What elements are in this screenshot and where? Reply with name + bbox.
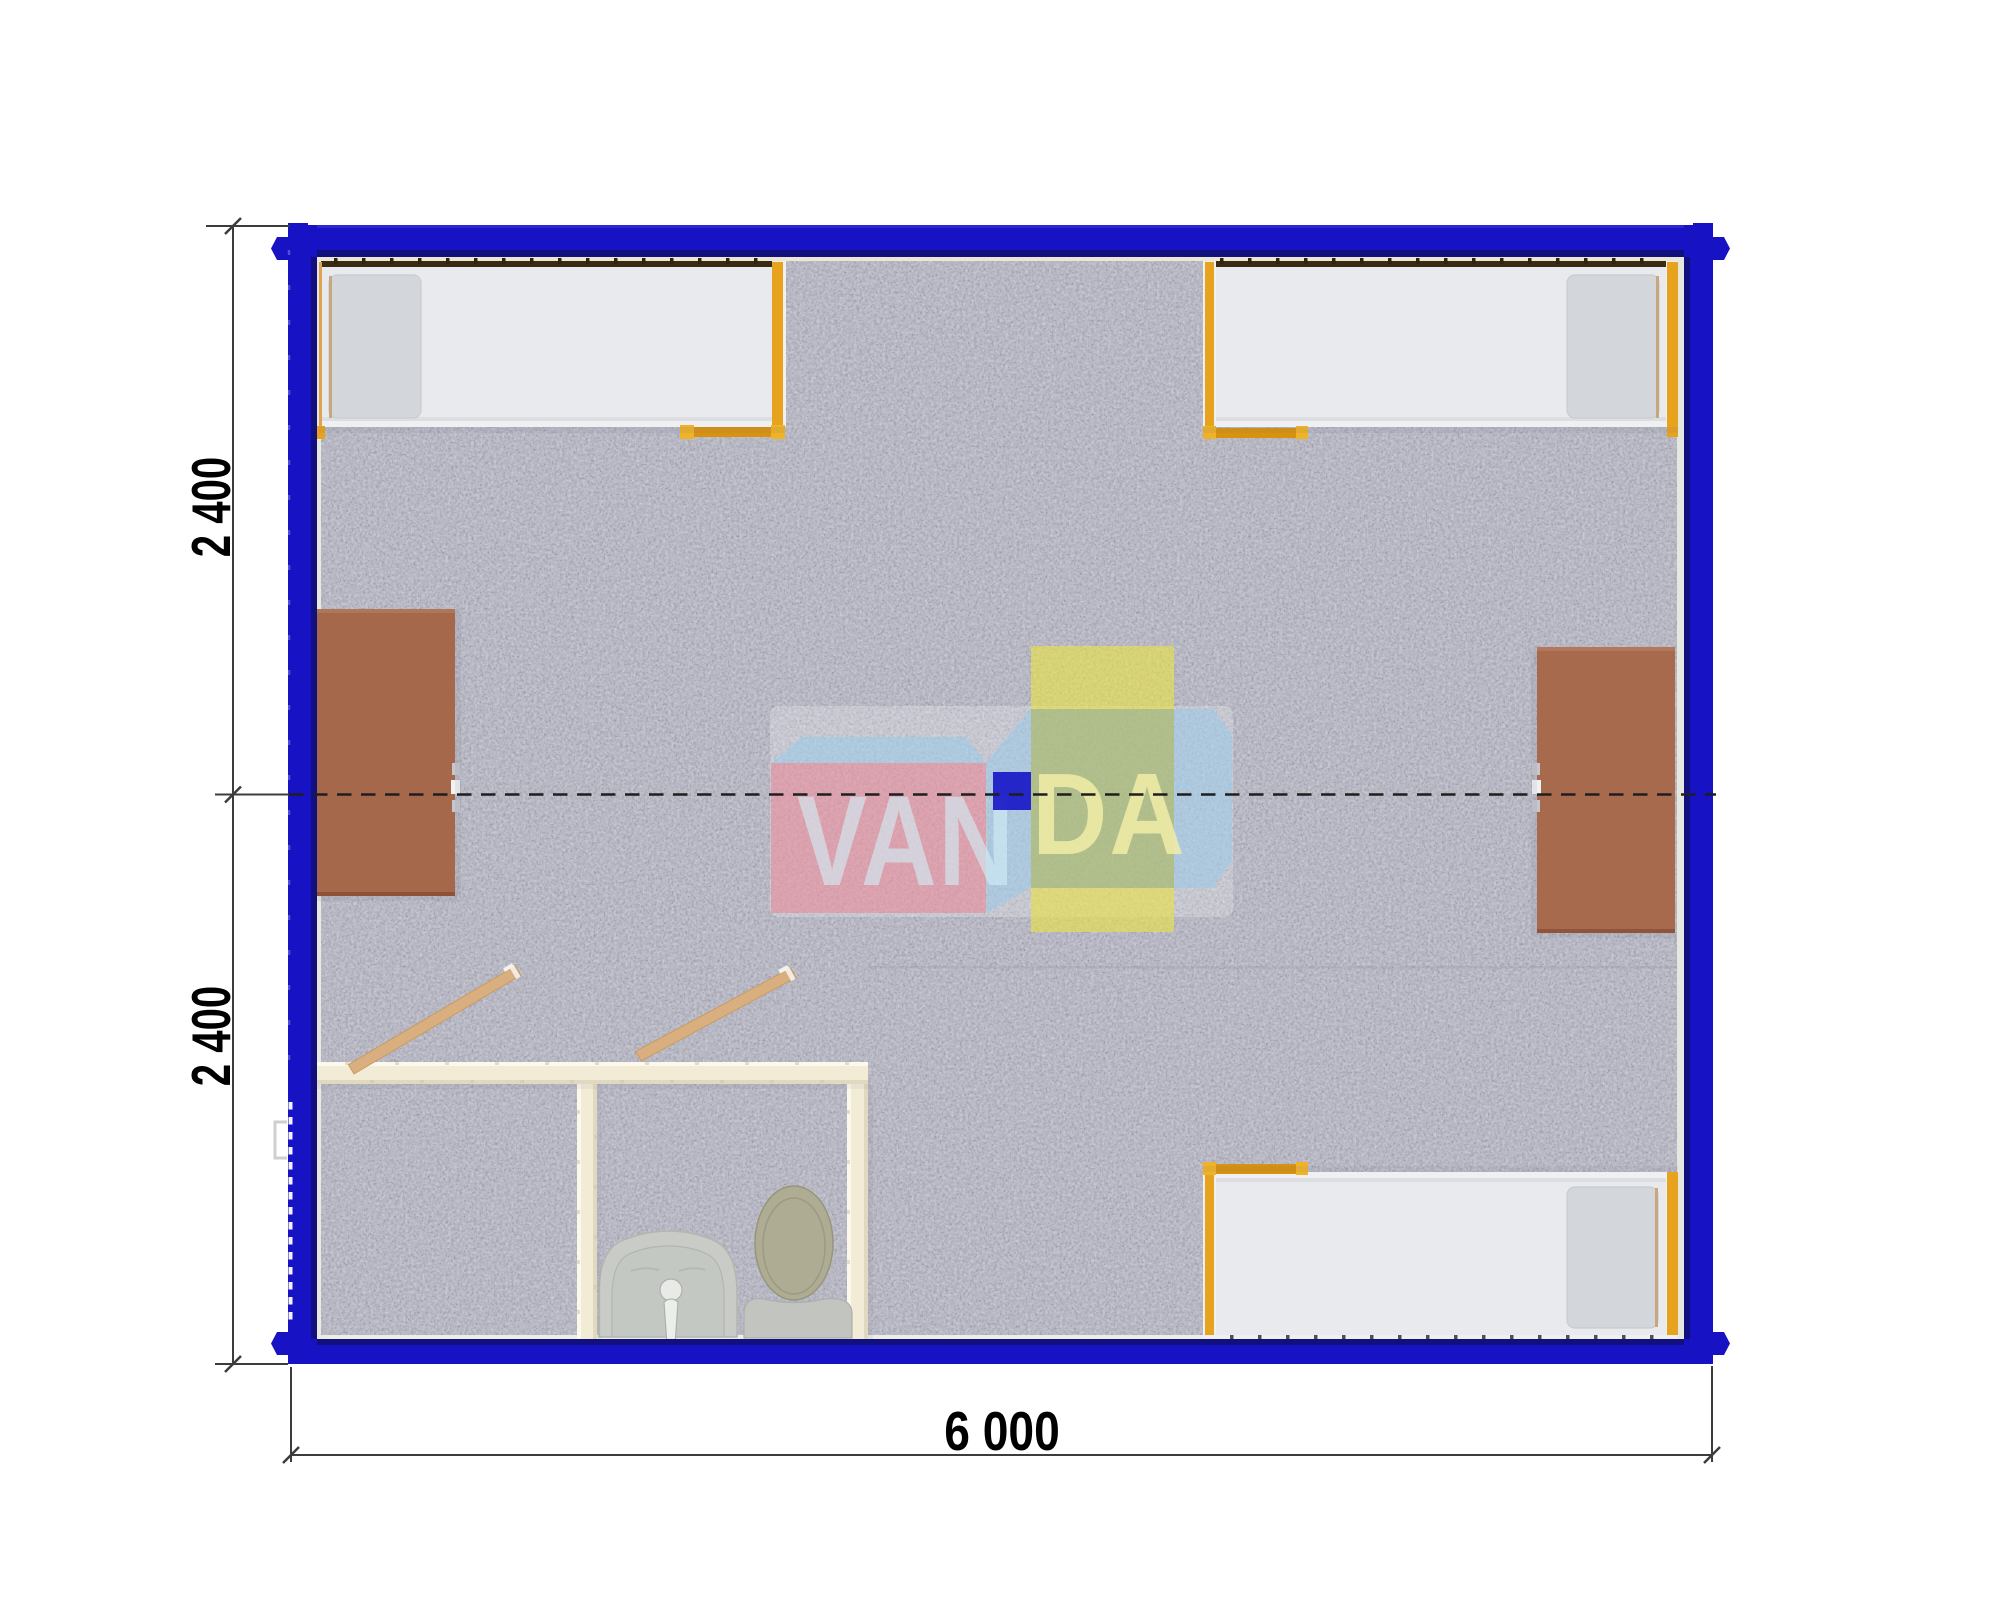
svg-text:DA: DA xyxy=(1032,750,1186,879)
svg-text:VAN: VAN xyxy=(797,769,1016,912)
svg-text:2 400: 2 400 xyxy=(181,986,243,1086)
svg-text:2 400: 2 400 xyxy=(181,457,243,557)
svg-text:6 000: 6 000 xyxy=(944,1400,1060,1462)
